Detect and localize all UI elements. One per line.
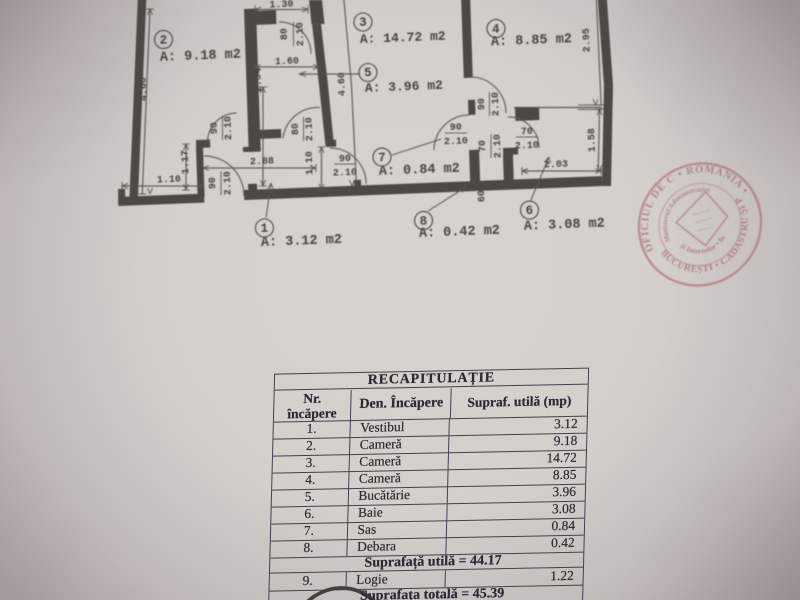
svg-text:OFICIUL DE C • ROMANIA •: OFICIUL DE C • ROMANIA • — [617, 141, 751, 259]
